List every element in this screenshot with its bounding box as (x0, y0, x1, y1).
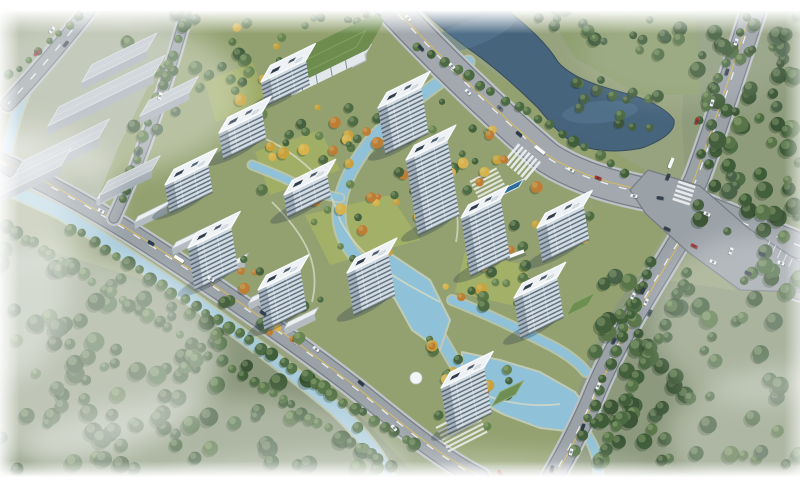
top-white-band (0, 0, 800, 10)
scene-canvas (0, 0, 800, 485)
aerial-site-rendering (0, 0, 800, 485)
shade-canopy (410, 372, 422, 384)
bottom-white-band (0, 477, 800, 485)
